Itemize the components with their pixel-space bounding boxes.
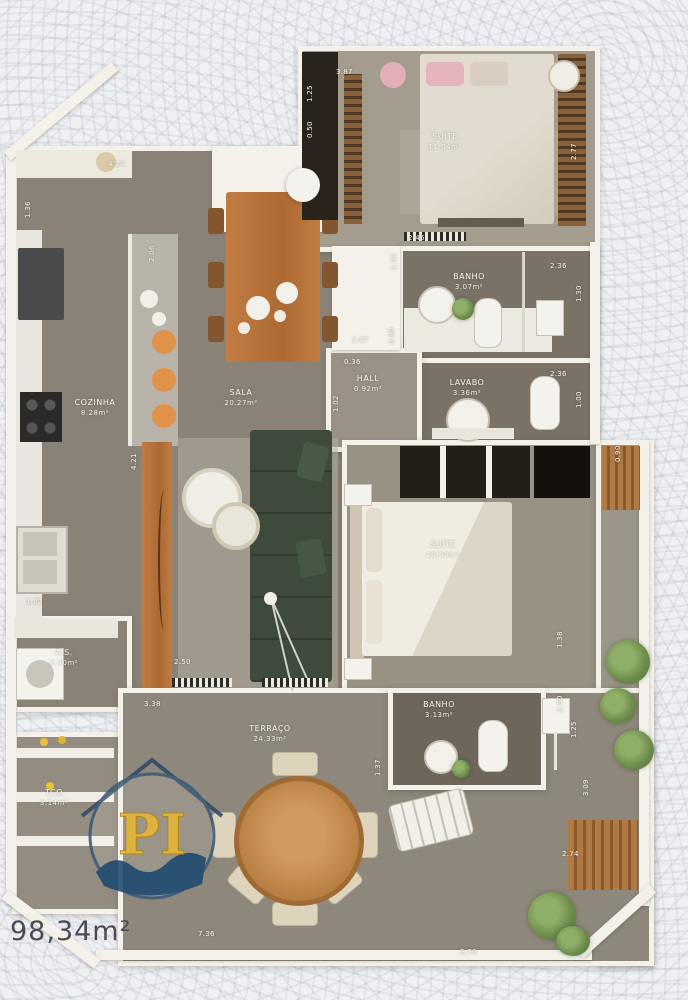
- floor-lamp-head: [264, 592, 277, 605]
- dimension-label: 2.70: [460, 948, 477, 956]
- wall-right-upper: [590, 242, 600, 444]
- dimension-label: 4.24: [108, 160, 125, 168]
- dimension-label: 2.46: [408, 234, 425, 242]
- logo-text: PI: [118, 802, 186, 868]
- room-area: 3.07m²: [455, 283, 483, 291]
- plant-balcony-2: [600, 688, 636, 724]
- room-label-suite-2: SUÍTE 10.90m²: [398, 540, 488, 560]
- room-area: 24.33m²: [253, 735, 286, 743]
- room-label-sala: SALA 20.27m²: [196, 388, 286, 408]
- nightstand-top: [344, 484, 372, 506]
- room-name: BANHO: [423, 700, 455, 709]
- room-label-terraco: TERRAÇO 24.33m²: [210, 724, 330, 744]
- dimension-label: 3.87: [336, 68, 353, 76]
- room-name: HALL: [357, 374, 379, 383]
- room-name: SALA: [230, 388, 253, 397]
- plant-balcony-1: [606, 640, 650, 684]
- plant-banho2: [452, 760, 470, 778]
- dimension-label: 0.90: [614, 445, 622, 462]
- dimension-label: 2.06: [148, 245, 156, 262]
- dimension-label: 1.87: [352, 336, 369, 344]
- bowl-island-1: [140, 290, 158, 308]
- room-name: SUÍTE: [432, 132, 458, 141]
- room-area: 10.90m²: [426, 551, 459, 559]
- door-sill-suite2-terraco: [262, 678, 328, 687]
- room-name: COZINHA: [75, 398, 116, 407]
- toilet-banho2: [478, 720, 508, 772]
- sideboard-handle: [158, 490, 170, 630]
- bed-bench-suite1: [438, 218, 524, 227]
- dimension-label: 2.36: [550, 370, 567, 378]
- pendant-lamp: [286, 168, 320, 202]
- dimension-label: 0.90: [388, 327, 396, 344]
- pillow-suite2: [366, 508, 382, 572]
- stool-2: [152, 368, 176, 392]
- pillow-beige-1: [470, 62, 508, 86]
- room-name: TCO: [45, 788, 63, 797]
- dining-chair: [208, 316, 224, 342]
- room-area: 3.14m²: [40, 799, 68, 807]
- dining-chair: [322, 316, 338, 342]
- stool-1: [152, 330, 176, 354]
- room-label-cozinha: COZINHA 8.28m²: [50, 398, 140, 418]
- dimension-label: 2.36: [550, 262, 567, 270]
- plant-terrace-2: [556, 926, 590, 956]
- pouf-pink: [380, 62, 406, 88]
- side-table-suite1: [548, 60, 580, 92]
- plant-banho1: [452, 298, 474, 320]
- room-label-suite-1: SUÍTE 11.04m²: [400, 132, 490, 152]
- room-hall: [326, 348, 422, 452]
- wardrobe-dark-suite2: [400, 446, 530, 498]
- toilet-lavabo: [530, 376, 560, 430]
- stool-3: [152, 404, 176, 428]
- plate-3: [238, 322, 250, 334]
- dimension-label: 1.82: [26, 598, 43, 606]
- room-label-lavabo: LAVABO 3.36m²: [422, 378, 512, 398]
- cabinet-dark-suite2: [534, 446, 590, 498]
- wall-bottom-outer: [96, 950, 592, 960]
- dimension-label: 1.42: [390, 253, 398, 270]
- dining-chair: [208, 262, 224, 288]
- bed-suite2: [362, 502, 512, 656]
- dimension-label: 3.38: [144, 700, 161, 708]
- room-name: TERRAÇO: [249, 724, 290, 733]
- dimension-label: 2.74: [562, 850, 579, 858]
- dimension-label: 3.09: [582, 779, 590, 796]
- plant-balcony-3: [614, 730, 654, 770]
- dimension-label: 2.50: [556, 695, 564, 712]
- shower-glass-banho1: [522, 252, 525, 352]
- bowl-island-2: [152, 312, 166, 326]
- room-area: 3.36m²: [453, 389, 481, 397]
- toilet-banho1: [474, 298, 502, 348]
- nightstand-bottom: [344, 658, 372, 680]
- shelf-item-yellow: [40, 738, 48, 746]
- room-name: BANHO: [453, 272, 485, 281]
- watermark-logo: PI: [76, 750, 228, 908]
- terrace-chair: [272, 752, 318, 776]
- room-label-area-servico: A.S. 2.40m²: [24, 648, 104, 668]
- room-area: 20.27m²: [224, 399, 257, 407]
- terrace-lamp-pole: [554, 732, 557, 770]
- terrace-round-table: [234, 776, 364, 906]
- kitchen-sink: [16, 526, 68, 594]
- pillow-pink-1: [426, 62, 464, 86]
- fridge: [18, 248, 64, 320]
- counter-as: [14, 618, 118, 638]
- dimension-label: 1.36: [24, 201, 32, 218]
- room-name: LAVABO: [450, 378, 485, 387]
- coffee-table-2: [212, 502, 260, 550]
- door-sill-sala-terraco: [172, 678, 232, 687]
- room-label-banho-2: BANHO 3.13m²: [394, 700, 484, 720]
- dining-chair: [208, 208, 224, 234]
- plate-2: [276, 282, 298, 304]
- dimension-label: 1.25: [570, 721, 578, 738]
- plate-4: [274, 310, 286, 322]
- dimension-label: 2.50: [174, 658, 191, 666]
- shelf-item-yellow: [58, 736, 66, 744]
- wardrobe-slats-left-suite1: [344, 74, 362, 224]
- room-area: 8.28m²: [81, 409, 109, 417]
- counter-lavabo: [432, 428, 514, 439]
- logo-svg: PI: [76, 750, 228, 908]
- room-area: 11.04m²: [428, 143, 461, 151]
- room-label-hall: HALL 0.92m²: [328, 374, 408, 394]
- room-area: 3.13m²: [425, 711, 453, 719]
- dimension-label: 7.36: [198, 930, 215, 938]
- dimension-label: 1.30: [575, 285, 583, 302]
- total-area-label: 98,34m²: [10, 916, 131, 947]
- dimension-label: 1.37: [374, 759, 382, 776]
- plate-1: [246, 296, 270, 320]
- dimension-label: 1.00: [575, 391, 583, 408]
- room-name: SUÍTE: [430, 540, 456, 549]
- room-area: 0.92m²: [354, 385, 382, 393]
- room-label-banho-1: BANHO 3.07m²: [424, 272, 514, 292]
- pillow-suite2: [366, 580, 382, 644]
- dimension-label: 1.25: [306, 85, 314, 102]
- dimension-label: 2.77: [570, 143, 578, 160]
- lamp-banho1: [536, 300, 564, 336]
- dimension-label: 1.38: [556, 631, 564, 648]
- dimension-label: 0.50: [306, 121, 314, 138]
- floor-plan: SUÍTE 11.04m² BANHO 3.07m² LAVABO 3.36m²…: [0, 0, 688, 1000]
- room-area: 2.40m²: [50, 659, 78, 667]
- dining-chair: [322, 262, 338, 288]
- dimension-label: 0.36: [344, 358, 361, 366]
- dimension-label: 4.21: [130, 453, 138, 470]
- room-name: A.S.: [55, 648, 73, 657]
- dimension-label: 1.02: [332, 395, 340, 412]
